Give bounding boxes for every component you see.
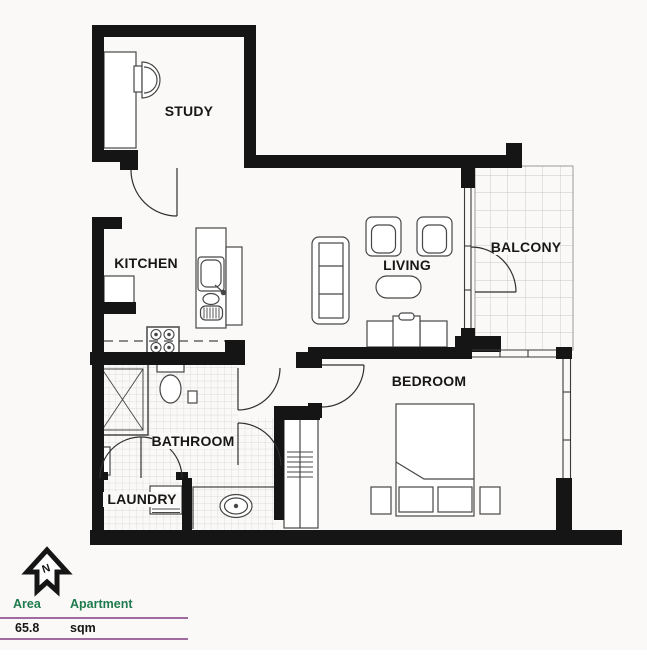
floor-plan-drawing: STUDY KITCHEN LIVING BALCONY BATHROOM LA… xyxy=(0,0,647,650)
area-legend: Area Apartment 65.8 sqm xyxy=(0,594,188,640)
living-furniture xyxy=(312,217,452,347)
room-label-study: STUDY xyxy=(165,103,214,119)
desk xyxy=(104,52,136,148)
legend-unit: sqm xyxy=(70,621,96,635)
kitchen-fixtures xyxy=(104,228,242,355)
balcony-sliding-door xyxy=(465,188,472,328)
legend-value-row: 65.8 sqm xyxy=(0,617,188,640)
pillow xyxy=(438,487,472,512)
tv-unit xyxy=(367,321,394,347)
legend-header-row: Area Apartment xyxy=(0,594,188,617)
wardrobe xyxy=(284,418,318,528)
legend-area-header: Area xyxy=(13,597,70,611)
bedside-table xyxy=(480,487,500,514)
room-label-balcony: BALCONY xyxy=(491,239,562,255)
toilet-bowl xyxy=(160,375,181,403)
pillow xyxy=(399,487,433,512)
bedside-table xyxy=(371,487,391,514)
bedroom-door xyxy=(322,365,364,407)
room-label-living: LIVING xyxy=(383,257,431,273)
north-arrow: N xyxy=(27,550,67,591)
bedroom-side-window xyxy=(563,359,571,478)
kitchen-bench-return xyxy=(226,247,242,325)
balcony-tiles xyxy=(475,166,573,350)
bedroom-furniture xyxy=(371,404,500,516)
sink-half-bowl xyxy=(203,294,219,305)
legend-apartment-header: Apartment xyxy=(70,597,133,611)
coffee-table xyxy=(376,276,421,298)
fridge-space xyxy=(104,276,134,306)
legend-area-value: 65.8 xyxy=(15,621,70,635)
room-label-laundry: LAUNDRY xyxy=(107,491,177,507)
floor-plan-page: STUDY KITCHEN LIVING BALCONY BATHROOM LA… xyxy=(0,0,647,650)
entry-door xyxy=(131,168,177,216)
desk-chair-seat xyxy=(134,66,142,92)
room-label-bedroom: BEDROOM xyxy=(392,373,467,389)
study-desk-and-chair xyxy=(104,52,160,148)
room-label-kitchen: KITCHEN xyxy=(114,255,178,271)
room-label-bathroom: BATHROOM xyxy=(152,433,235,449)
